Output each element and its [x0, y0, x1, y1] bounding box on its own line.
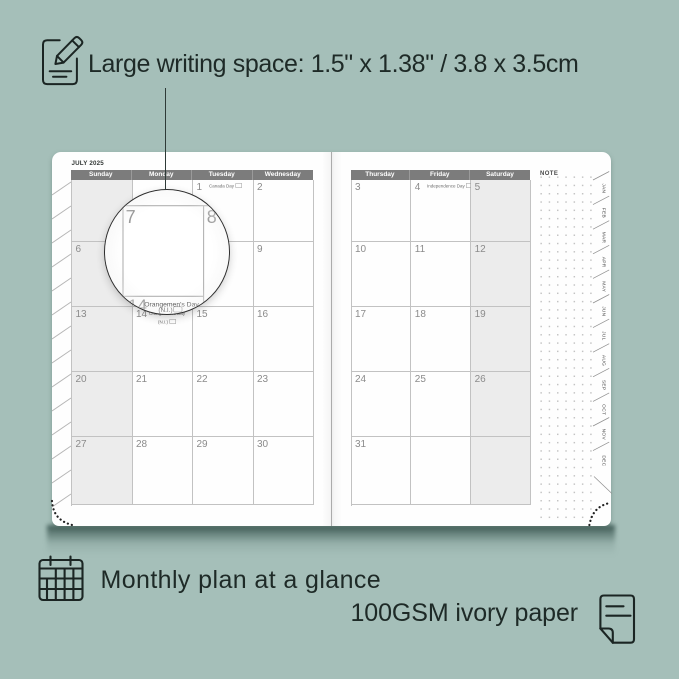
svg-text:FEB: FEB — [601, 208, 607, 218]
svg-text:MAY: MAY — [601, 281, 607, 292]
svg-text:MAR: MAR — [601, 232, 607, 244]
svg-text:AUG: AUG — [601, 355, 607, 366]
svg-text:SEP: SEP — [601, 380, 607, 391]
svg-text:NOV: NOV — [601, 429, 607, 441]
svg-text:JUL: JUL — [601, 331, 607, 340]
svg-text:DEC: DEC — [601, 455, 607, 466]
svg-text:JUN: JUN — [601, 306, 607, 316]
svg-text:OCT: OCT — [601, 404, 607, 415]
svg-text:JAN: JAN — [601, 183, 607, 193]
svg-text:APR: APR — [601, 257, 607, 268]
